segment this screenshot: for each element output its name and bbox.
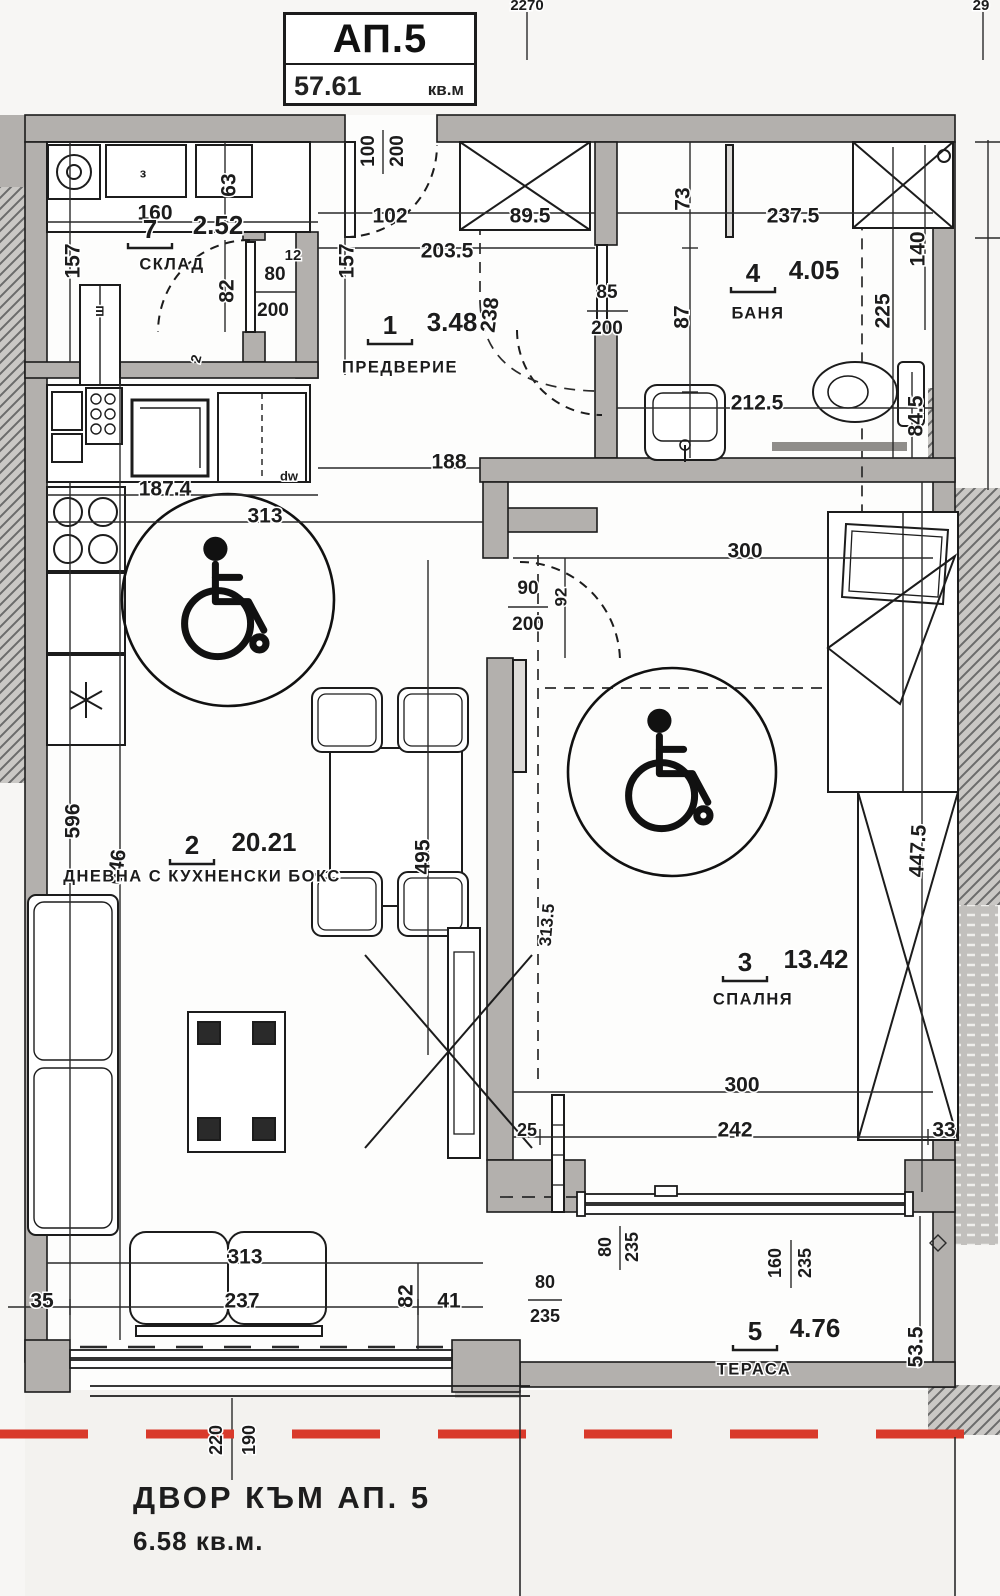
dimension-label: 89.5: [510, 205, 551, 228]
dimension-label: 33: [932, 1119, 955, 1142]
dimension-label: 87: [671, 305, 694, 328]
door-jamb: [552, 1095, 564, 1212]
dimension-label: 313: [247, 505, 282, 528]
dimension-label: 85: [596, 282, 618, 303]
right-hatch-strip: [955, 488, 1000, 905]
room-name: СПАЛНЯ: [713, 990, 793, 1008]
dimension-label: 25: [517, 1120, 537, 1140]
dimension-label: 225: [872, 293, 895, 328]
kitchen-sink: [52, 392, 82, 430]
room-number: 7: [143, 214, 157, 244]
dimension-label: 73: [672, 187, 695, 210]
room-name: СКЛАД: [139, 255, 204, 273]
grab-bar: [772, 442, 907, 451]
dimension-label: 495: [412, 839, 435, 874]
dimension-label: 596: [62, 803, 85, 838]
room-area: 4.76: [790, 1313, 841, 1343]
kitchen-tall-cabinet: [47, 573, 125, 653]
dimension-label: 41: [437, 1290, 461, 1313]
dimension-label: 140: [907, 231, 930, 266]
dimension-label: 200: [591, 318, 623, 339]
dimension-label: 237.5: [767, 205, 820, 228]
room-name: ДНЕВНА С КУХНЕНСКИ БОКС: [63, 867, 341, 885]
dimension-label: 63: [218, 173, 241, 196]
dimension-label: 80: [595, 1237, 615, 1257]
dimension-label: 300: [724, 1074, 759, 1097]
dimension-label: 313: [227, 1246, 262, 1269]
bedroom-door-leaf: [513, 660, 526, 772]
dimension-label: 80: [535, 1272, 555, 1292]
dimension-label: 160: [765, 1248, 785, 1278]
dimension-label: 92: [551, 588, 570, 607]
dimension-label: 157: [336, 243, 359, 278]
terrace-corner-hatch: [928, 1385, 1000, 1435]
room-name: ПРЕДВЕРИЕ: [342, 358, 458, 376]
shower-screen: [726, 145, 733, 237]
dimension-label: 190: [239, 1425, 259, 1455]
chair: [312, 688, 382, 752]
room-area: 20.21: [231, 827, 296, 857]
dimension-label: 200: [512, 614, 544, 635]
dimension-label: 84.5: [905, 395, 928, 436]
room-number: 5: [748, 1316, 762, 1346]
dimension-label: 80: [264, 264, 285, 285]
dimension-label: 237: [224, 1290, 259, 1313]
chair: [398, 872, 468, 936]
dimension-label: 235: [530, 1306, 560, 1326]
dimension-label: 242: [717, 1119, 752, 1142]
yard-title: ДВОР КЪМ АП. 5: [133, 1480, 431, 1516]
fixture-label: ш: [91, 305, 107, 317]
bed: [828, 512, 958, 792]
living-window: [70, 1350, 452, 1358]
room-number: 4: [746, 258, 761, 288]
entrance-door-leaf: [345, 142, 355, 237]
door-handle: [655, 1186, 677, 1196]
right-dash-strip: [955, 905, 998, 1245]
storage-door-leaf: [246, 242, 255, 332]
dimension-label: 53.5: [905, 1326, 928, 1367]
dimension-label: 2270: [510, 0, 543, 14]
dimension-label: 212.5: [731, 392, 784, 415]
room-number: 3: [738, 947, 752, 977]
dimension-label: 238: [477, 296, 504, 334]
room-number: 1: [383, 310, 397, 340]
yard-area: 6.58 кв.м.: [133, 1526, 431, 1557]
dimension-label: 187.4: [139, 478, 192, 501]
dimension-label: 100: [358, 135, 379, 167]
room-area: 2.52: [193, 210, 244, 240]
title-block: АП.5 57.61 кв.м: [283, 12, 477, 106]
dimension-label: 12: [285, 247, 302, 264]
apartment-area-unit: кв.м: [428, 80, 464, 100]
dimension-label: 188: [431, 451, 466, 474]
room-area: 4.05: [789, 255, 840, 285]
dimension-label: 102: [372, 205, 407, 228]
dimension-label: 82: [216, 279, 239, 302]
dimension-label: 300: [727, 540, 762, 563]
dimension-label: 220: [206, 1425, 226, 1455]
dimension-label: 313.5: [536, 903, 559, 947]
dimension-label: 82: [395, 1284, 418, 1307]
dimension-label: 157: [62, 243, 85, 278]
sofa-bottom-cushion: [130, 1232, 228, 1324]
left-hatch-strip: [0, 187, 25, 783]
room-area: 13.42: [783, 944, 848, 974]
dimension-label: 29: [973, 0, 990, 14]
dimension-label: 447.5: [905, 824, 931, 878]
room-name: БАНЯ: [732, 304, 785, 322]
chair: [398, 688, 468, 752]
fixture-label: dw: [280, 468, 299, 483]
sofa-left: [28, 895, 118, 1235]
exterior-wall-strip: [0, 115, 25, 187]
floor-plan-canvas: 16010289.5203.51576382802001210020015723…: [0, 0, 1000, 1596]
yard-caption: ДВОР КЪМ АП. 5 6.58 кв.м.: [133, 1480, 431, 1557]
dimension-label: 35: [30, 1290, 54, 1313]
dimension-label: 90: [517, 578, 538, 599]
tv-cabinet: [448, 928, 480, 1158]
dimension-label: 235: [622, 1232, 642, 1262]
washing-machine: [48, 145, 100, 199]
fixture-label: з: [140, 165, 147, 180]
apartment-area-value: 57.61: [294, 71, 362, 102]
dimension-label: 200: [387, 135, 408, 167]
floor-plan-drawing: 16010289.5203.51576382802001210020015723…: [0, 0, 1000, 1596]
toilet-bowl: [813, 362, 897, 422]
oven: [132, 400, 208, 476]
apartment-number: АП.5: [286, 15, 474, 65]
terrace-door: [585, 1194, 905, 1203]
dimension-label: 200: [257, 300, 289, 321]
room-name: ТЕРАСА: [717, 1360, 792, 1378]
room-area: 3.48: [427, 307, 478, 337]
sofa-base: [136, 1326, 322, 1336]
dimension-label: 203.5: [421, 240, 474, 263]
room-number: 2: [185, 830, 199, 860]
dimension-label: 235: [795, 1248, 815, 1278]
